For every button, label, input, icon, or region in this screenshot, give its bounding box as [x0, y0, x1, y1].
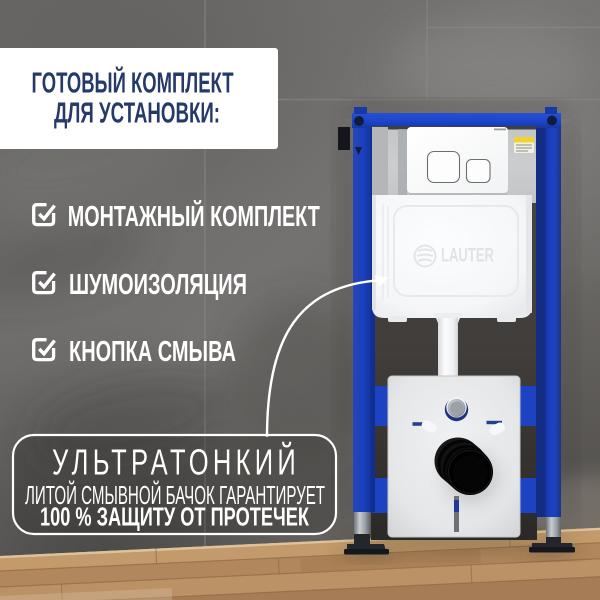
svg-text:ДЛЯ УСТАНОВКИ:: ДЛЯ УСТАНОВКИ: — [54, 98, 220, 130]
svg-text:КНОПКА СМЫВА: КНОПКА СМЫВА — [69, 336, 236, 368]
svg-text:LAUTER: LAUTER — [441, 246, 494, 267]
svg-text:УЛЬТРАТОНКИЙ: УЛЬТРАТОНКИЙ — [52, 440, 300, 482]
svg-text:МОНТАЖНЫЙ КОМПЛЕКТ: МОНТАЖНЫЙ КОМПЛЕКТ — [68, 200, 320, 233]
svg-text:100 % ЗАЩИТУ ОТ ПРОТЕЧЕК: 100 % ЗАЩИТУ ОТ ПРОТЕЧЕК — [40, 501, 309, 531]
svg-text:ГОТОВЫЙ КОМПЛЕКТ: ГОТОВЫЙ КОМПЛЕКТ — [32, 67, 234, 100]
svg-text:ШУМОИЗОЛЯЦИЯ: ШУМОИЗОЛЯЦИЯ — [69, 269, 247, 301]
